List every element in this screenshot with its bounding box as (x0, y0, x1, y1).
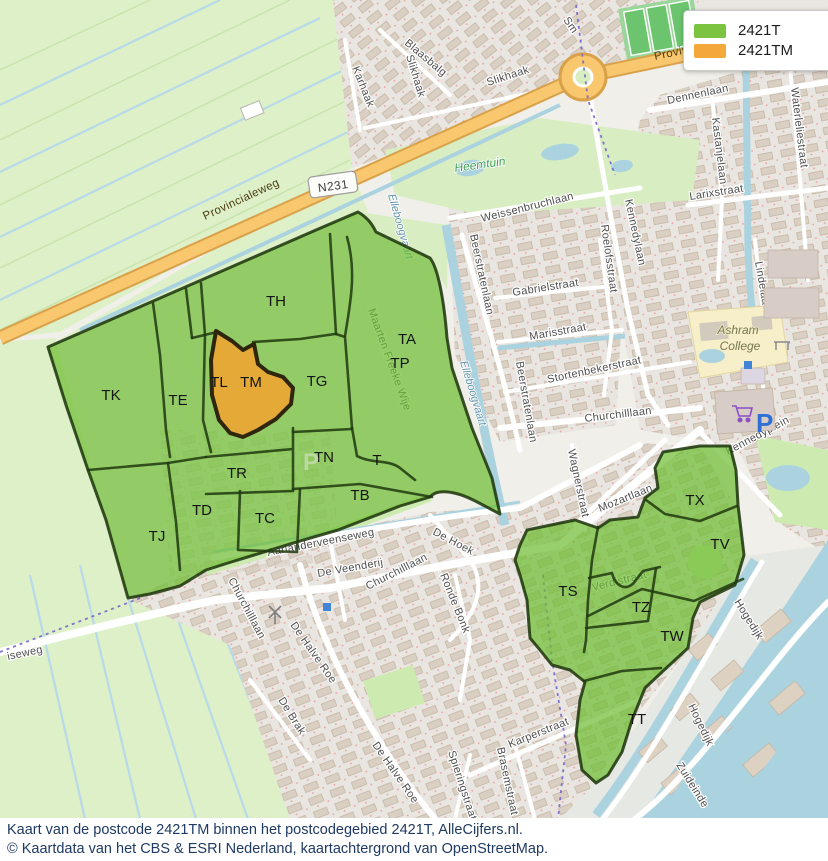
caption-line1: Kaart van de postcode 2421TM binnen het … (0, 818, 828, 840)
region-label: TH (266, 293, 286, 310)
region-label: TW (660, 628, 684, 645)
caption-line2: © Kaartdata van het CBS & ESRI Nederland… (0, 840, 828, 859)
legend-label: 2421T (738, 22, 781, 39)
sports-hall-icon (744, 361, 752, 369)
map-screenshot: Blaasbalg Karhaak Slikhaak Slikhaak Sm P… (0, 0, 828, 861)
parking-small-icon: P (303, 449, 319, 476)
region-label: TV (710, 536, 729, 553)
region-label: TP (390, 355, 409, 372)
map-legend: 2421T 2421TM (683, 10, 828, 71)
place-label: College (720, 339, 761, 353)
parking-icon: P (756, 408, 773, 438)
region-label: TC (255, 510, 275, 527)
region-label: TD (192, 502, 212, 519)
map-caption: Kaart van de postcode 2421TM binnen het … (0, 818, 828, 861)
map-canvas: Blaasbalg Karhaak Slikhaak Slikhaak Sm P… (0, 0, 828, 819)
region-label: TA (398, 331, 416, 348)
region-label: TG (307, 373, 328, 390)
legend-label: 2421TM (738, 42, 793, 59)
place-label: Ashram (716, 323, 758, 337)
region-label: TS (558, 583, 577, 600)
legend-row: 2421T (694, 22, 822, 39)
sports-hall-icon (323, 603, 331, 611)
region-label: TR (227, 465, 247, 482)
region-label: TB (350, 487, 369, 504)
region-label: TT (628, 711, 646, 728)
region-label: TZ (632, 599, 650, 616)
legend-swatch-2421tm (694, 44, 726, 58)
region-label: TE (168, 392, 187, 409)
legend-row: 2421TM (694, 42, 822, 59)
region-label: TX (685, 492, 704, 509)
region-label: T (372, 452, 381, 469)
region-label: TL (210, 374, 228, 391)
legend-swatch-2421t (694, 24, 726, 38)
region-label: TJ (149, 528, 166, 545)
region-label: TK (101, 387, 120, 404)
region-label: TM (240, 374, 262, 391)
